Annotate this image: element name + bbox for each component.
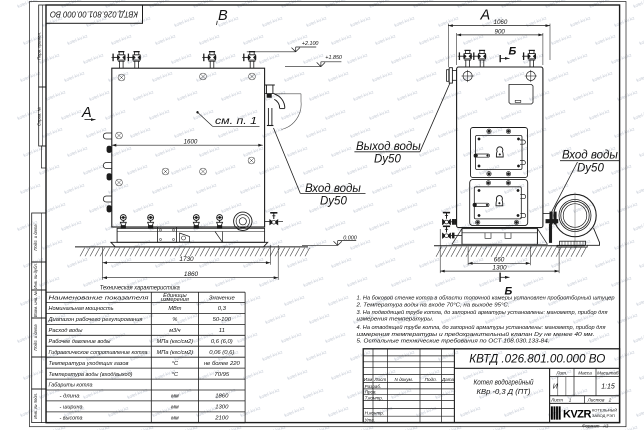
svg-text:+1.850: +1.850 — [325, 55, 342, 61]
svg-text:Расход воды: Расход воды — [49, 328, 84, 334]
svg-text:0.000: 0.000 — [343, 235, 357, 241]
svg-text:КВр -0,3 Д (ПТ): КВр -0,3 Д (ПТ) — [477, 389, 531, 396]
svg-text:11: 11 — [219, 328, 225, 334]
svg-text:°С: °С — [172, 361, 179, 367]
svg-text:Масштаб: Масштаб — [597, 371, 619, 376]
svg-text:N докум.: N докум. — [395, 377, 414, 382]
svg-text:Котел водогрейный: Котел водогрейный — [474, 379, 534, 387]
svg-text:Н.контр.: Н.контр. — [365, 411, 384, 416]
svg-text:Изм: Изм — [364, 377, 373, 382]
svg-text:Рабочее давление воды: Рабочее давление воды — [49, 339, 112, 345]
svg-text:Инв. № подл.: Инв. № подл. — [33, 393, 38, 419]
svg-text:Лист: Лист — [550, 398, 563, 403]
svg-text:900: 900 — [495, 28, 506, 35]
svg-text:Масса: Масса — [578, 371, 592, 376]
svg-text:не более 220: не более 220 — [204, 361, 241, 367]
svg-text:Взам. инв. №: Взам. инв. № — [33, 291, 38, 317]
svg-text:Температура воды (вход/выход): Температура воды (вход/выход) — [49, 372, 133, 378]
svg-text:Температура уходящих газов: Температура уходящих газов — [49, 361, 129, 367]
svg-text:МВт: МВт — [168, 306, 181, 312]
svg-text:КВТД .026.801.00.000 ВО: КВТД .026.801.00.000 ВО — [469, 352, 605, 366]
svg-text:1:15: 1:15 — [601, 384, 615, 391]
svg-text:Вход воды: Вход воды — [562, 149, 618, 161]
svg-text:КВТД.026.801.00.000 ВО: КВТД.026.801.00.000 ВО — [50, 9, 138, 18]
svg-text:измерения температуры и предох: измерения температуры и предохранительны… — [357, 331, 595, 338]
svg-text:2. Температура воды на входе: 2. Температура воды на входе 70°С, на вы… — [355, 302, 509, 308]
svg-text:°С: °С — [172, 372, 179, 378]
svg-text:KVZR: KVZR — [563, 409, 592, 421]
svg-text:1730: 1730 — [179, 256, 194, 263]
svg-text:Справ. №: Справ. № — [37, 107, 42, 126]
svg-text:Техническая характеристика: Техническая характеристика — [100, 284, 180, 291]
svg-text:Листов: Листов — [587, 398, 605, 403]
svg-text:2: 2 — [608, 398, 612, 403]
svg-text:- ширина: - ширина — [60, 405, 84, 411]
svg-text:- высота: - высота — [60, 416, 84, 422]
svg-text:Дата: Дата — [441, 377, 455, 382]
svg-text:см. п. 1: см. п. 1 — [215, 116, 257, 127]
svg-text:1. На боковой стенке котла в: 1. На боковой стенке котла в области топ… — [357, 294, 616, 301]
svg-text:Подп. и дата: Подп. и дата — [33, 324, 38, 351]
svg-text:А3: А3 — [602, 423, 609, 428]
svg-text:1860: 1860 — [184, 271, 199, 278]
svg-text:Лист: Лист — [373, 377, 386, 382]
svg-text:1300: 1300 — [215, 405, 229, 411]
svg-text:1300: 1300 — [492, 264, 507, 271]
svg-text:А: А — [81, 105, 92, 121]
svg-text:Dy50: Dy50 — [374, 154, 401, 166]
svg-text:70/95: 70/95 — [214, 372, 229, 378]
svg-text:мм: мм — [171, 405, 179, 411]
svg-text:4. На отводящей трубе котла,: 4. На отводящей трубе котла, до запорной… — [357, 324, 606, 331]
svg-text:0,06 (0,6): 0,06 (0,6) — [209, 350, 234, 356]
svg-text:Наименование показателя: Наименование показателя — [49, 296, 150, 302]
svg-text:Dy50: Dy50 — [577, 163, 604, 175]
svg-text:0,6 (6,0): 0,6 (6,0) — [211, 339, 233, 345]
svg-text:Выход воды: Выход воды — [356, 141, 421, 153]
svg-text:2100: 2100 — [214, 416, 229, 422]
svg-text:м3/ч: м3/ч — [169, 328, 180, 334]
svg-text:Пров.: Пров. — [365, 390, 377, 395]
svg-text:измерения: измерения — [161, 297, 189, 303]
svg-text:Б: Б — [509, 45, 517, 57]
svg-text:50-100: 50-100 — [213, 317, 232, 323]
svg-text:1600: 1600 — [184, 139, 198, 146]
svg-text:%: % — [172, 317, 177, 323]
svg-text:0,3: 0,3 — [218, 306, 227, 312]
svg-text:Значение: Значение — [209, 296, 236, 302]
svg-text:Габариты котла: Габариты котла — [49, 383, 94, 389]
svg-text:Номинальная мощность: Номинальная мощность — [49, 306, 114, 312]
svg-text:мм: мм — [171, 416, 179, 422]
svg-text:А: А — [480, 8, 491, 24]
svg-text:3. На подводящей трубе котла,: 3. На подводящей трубе котла, до запорно… — [357, 309, 608, 316]
svg-text:Подп. и дата: Подп. и дата — [33, 224, 38, 251]
svg-text:1: 1 — [569, 398, 572, 403]
svg-text:Диапазон рабочего регулировани: Диапазон рабочего регулирования — [48, 317, 144, 323]
svg-text:Подп.: Подп. — [425, 377, 437, 382]
svg-text:Dy50: Dy50 — [320, 196, 347, 208]
svg-text:Перв. примен.: Перв. примен. — [37, 32, 42, 60]
svg-text:1060: 1060 — [494, 19, 508, 26]
svg-text:ЗАВОД РЭП: ЗАВОД РЭП — [592, 413, 615, 418]
svg-text:В: В — [218, 8, 228, 24]
svg-text:5. Остальные технические треб: 5. Остальные технические требования по О… — [357, 339, 550, 345]
svg-text:Инв. № дубл.: Инв. № дубл. — [33, 263, 38, 289]
svg-text:1860: 1860 — [215, 394, 229, 400]
svg-text:мм: мм — [171, 394, 179, 400]
svg-text:Разраб.: Разраб. — [365, 384, 382, 389]
svg-text:МПа (кгс/см2): МПа (кгс/см2) — [157, 339, 194, 345]
svg-text:Гидравлическое сопротивление к: Гидравлическое сопротивление котла — [49, 350, 149, 356]
svg-text:Формат: Формат — [582, 423, 600, 428]
svg-text:- длина: - длина — [60, 394, 81, 400]
svg-text:+2.100: +2.100 — [302, 41, 319, 47]
svg-text:МПа (кгс/см2): МПа (кгс/см2) — [157, 350, 194, 356]
svg-text:измерения температуры.: измерения температуры. — [357, 317, 434, 323]
svg-text:Утв.: Утв. — [365, 418, 375, 423]
svg-text:Т.контр.: Т.контр. — [365, 396, 384, 401]
svg-text:КОТЕЛЬНЫЙ: КОТЕЛЬНЫЙ — [592, 408, 617, 413]
svg-text:660: 660 — [494, 257, 505, 264]
svg-text:Лит.: Лит. — [555, 371, 567, 376]
